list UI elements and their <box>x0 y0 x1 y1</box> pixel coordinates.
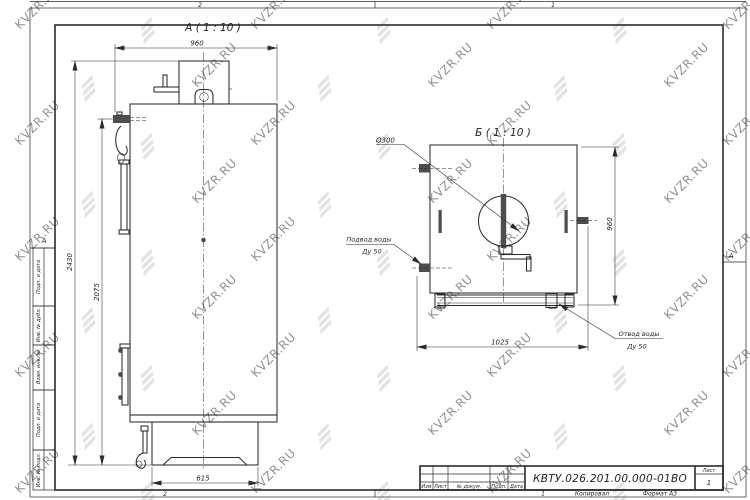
watermark-logo <box>547 423 575 451</box>
watermark-text: KVZR.RU <box>248 98 298 148</box>
watermark-logo <box>134 249 162 277</box>
zone-side-left: А <box>41 237 47 245</box>
zone-bottom-left: 2 <box>163 491 167 498</box>
outlet-label: Отвод воды <box>619 330 660 338</box>
watermark-logo <box>75 307 103 335</box>
watermark-text: KVZR.RU <box>425 156 475 206</box>
dim-a-base-width: 615 <box>196 475 210 483</box>
dim-b-diameter: Ø300 <box>375 137 395 145</box>
tb-header-data: Дата <box>509 484 523 490</box>
doc-number: КВТУ.026.201.00.000-01ВО <box>533 473 687 485</box>
watermark-text: KVZR.RU <box>484 330 534 380</box>
annotation-outlet: Отвод воды Ду 50 <box>559 304 663 351</box>
watermark-text: KVZR.RU <box>720 0 750 32</box>
watermark-logo <box>606 365 634 393</box>
zone-top-left: 2 <box>198 2 202 9</box>
watermark-text: KVZR.RU <box>248 214 298 264</box>
watermark-text: KVZR.RU <box>248 446 298 496</box>
watermark-text: KVZR.RU <box>720 330 750 380</box>
watermark-text: KVZR.RU <box>425 272 475 322</box>
view-a-label: А ( 1 : 10 ) <box>184 22 241 34</box>
watermark-text: KVZR.RU <box>425 388 475 438</box>
watermark-logo <box>547 75 575 103</box>
stamp-label: Инв. № подл. <box>36 453 42 488</box>
drawing-page: KVZR.RUKVZR.RUKVZR.RUKVZR.RUKVZR.RUKVZR.… <box>0 0 750 500</box>
format-label: Формат А3 <box>643 491 677 498</box>
watermark-text: KVZR.RU <box>661 388 711 438</box>
watermark-logo <box>547 191 575 219</box>
watermark-logo <box>311 75 339 103</box>
watermark-logo <box>75 423 103 451</box>
watermark-logo <box>75 191 103 219</box>
watermark-logo <box>311 191 339 219</box>
watermark-text: KVZR.RU <box>484 0 534 32</box>
watermark-logo <box>134 133 162 161</box>
sheet-frame: 2 1 2 А А <box>30 2 746 499</box>
title-block: Изм Лист № докум. Подп. Дата КВТУ.026.20… <box>420 466 723 498</box>
watermark-text: KVZR.RU <box>248 0 298 32</box>
tb-header-dokum: № докум. <box>456 484 482 490</box>
tb-header-list: Лист <box>433 484 448 490</box>
inlet-size: Ду 50 <box>361 248 381 256</box>
dim-b-height: 960 <box>606 217 614 231</box>
watermark-logo <box>606 249 634 277</box>
watermark-text: KVZR.RU <box>661 156 711 206</box>
drawing-sheet: KVZR.RUKVZR.RUKVZR.RUKVZR.RUKVZR.RUKVZR.… <box>0 0 750 500</box>
stamp-label: Инв. № дубл. <box>36 308 42 342</box>
watermark-logo <box>311 423 339 451</box>
watermark-text: KVZR.RU <box>189 272 239 322</box>
view-a: А ( 1 : 10 ) <box>66 22 277 486</box>
zone-top-right: 1 <box>551 2 555 9</box>
watermark-text: KVZR.RU <box>720 446 750 496</box>
dim-a-height-door: 2075 <box>93 283 101 301</box>
watermark-text: KVZR.RU <box>661 40 711 90</box>
tb-header-podp: Подп. <box>491 484 506 490</box>
stamp-label: Подп. и дата <box>36 260 42 294</box>
dim-b-width: 1025 <box>491 339 509 347</box>
watermark-logo <box>134 17 162 45</box>
watermark-logo <box>134 365 162 393</box>
stamp-label: Взам. инв. № <box>36 350 42 384</box>
watermark-text: KVZR.RU <box>720 214 750 264</box>
zone-bottom-right: 1 <box>541 491 545 498</box>
watermark-text: KVZR.RU <box>189 388 239 438</box>
stamp-label: Подп. и дата <box>36 403 42 437</box>
view-b: Б ( 1 : 10 ) Ø300 <box>346 127 663 351</box>
sheet-cell-label: Лист <box>702 468 717 474</box>
dim-a-height-total: 2430 <box>66 253 74 271</box>
watermark-text: KVZR.RU <box>720 98 750 148</box>
watermark-logo <box>370 17 398 45</box>
watermark-text: KVZR.RU <box>661 272 711 322</box>
watermark-logo <box>311 307 339 335</box>
watermark-text: KVZR.RU <box>484 98 534 148</box>
watermark-logo <box>75 75 103 103</box>
watermark-logo <box>606 133 634 161</box>
watermark-text: KVZR.RU <box>248 330 298 380</box>
outlet-size: Ду 50 <box>626 343 646 351</box>
tb-header-izm: Изм <box>421 484 431 490</box>
watermark-text: KVZR.RU <box>189 156 239 206</box>
sheet-cell-value: 1 <box>707 479 711 487</box>
watermark-logo <box>370 365 398 393</box>
watermark-logo <box>606 17 634 45</box>
inlet-label: Подвод воды <box>346 236 391 244</box>
view-b-label: Б ( 1 : 10 ) <box>475 127 531 139</box>
kopiroval-label: Копировал <box>575 491 609 498</box>
annotation-inlet: Подвод воды Ду 50 <box>346 236 421 265</box>
watermark-text: KVZR.RU <box>425 40 475 90</box>
zone-side-right: А <box>728 252 734 260</box>
dim-a-width: 960 <box>190 40 204 48</box>
